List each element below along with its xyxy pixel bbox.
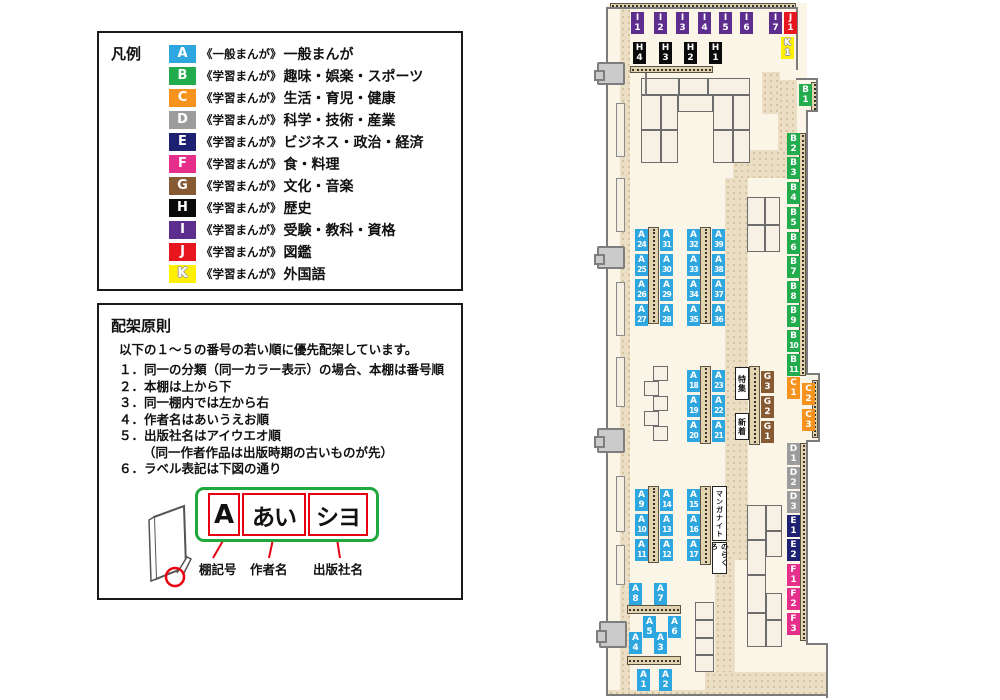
wall <box>806 440 808 645</box>
shelf-label-a23: A23 <box>712 370 725 392</box>
shelf-label-a1: A1 <box>637 669 650 691</box>
bookshelf-strip <box>749 366 760 445</box>
shelf-label-a12: A12 <box>660 539 673 561</box>
shelf-label-i3: I3 <box>676 12 689 34</box>
shelf-label-b9: B9 <box>787 305 800 327</box>
shelf-label-i1: I1 <box>631 12 644 34</box>
bookshelf-strip <box>700 366 711 444</box>
reading-table <box>695 655 714 672</box>
shelf-label-i7: I7 <box>769 12 782 34</box>
reading-table <box>747 613 766 647</box>
reading-table <box>653 396 668 411</box>
shelf-label-e1: E1 <box>787 515 800 537</box>
wall <box>806 440 820 442</box>
reading-table <box>766 531 782 557</box>
wall <box>818 373 820 442</box>
reading-table <box>644 411 659 426</box>
library-manga-floor-map-page: 凡例 A《一般まんが》一般まんがB《学習まんが》趣味・娯楽・スポーツC《学習まん… <box>0 0 1000 700</box>
shelf-label-a24: A24 <box>635 229 648 251</box>
reading-table <box>653 426 668 441</box>
shelf-label-a38: A38 <box>712 254 725 276</box>
shelf-label-b10: B10 <box>787 330 800 352</box>
shelf-label-a3: A3 <box>654 632 667 654</box>
shelf-label-g2: G2 <box>761 396 774 418</box>
shelf-label-j1: J1 <box>784 12 797 34</box>
shelf-label-c2: C2 <box>802 383 815 405</box>
shelf-label-b5: B5 <box>787 207 800 229</box>
shelf-label-b11: B11 <box>787 354 800 376</box>
shelf-label-a18: A18 <box>687 370 700 392</box>
wall-shelf <box>616 476 625 532</box>
text-box-new-arrivals: 新着 <box>735 413 749 440</box>
shelf-label-b8: B8 <box>787 281 800 303</box>
text-box-manga-night: マンガナイト <box>712 486 727 541</box>
shelf-label-k1: K1 <box>781 37 794 59</box>
wall-shelf <box>616 357 625 407</box>
shelf-label-d1: D1 <box>787 443 800 465</box>
reading-table <box>747 197 765 225</box>
door <box>597 428 625 453</box>
shelf-label-b2: B2 <box>787 133 800 155</box>
reading-table <box>766 505 782 531</box>
shelf-label-a4: A4 <box>629 632 642 654</box>
reading-table <box>765 197 780 225</box>
reading-table <box>661 95 678 130</box>
door <box>599 621 627 648</box>
shelf-label-i6: I6 <box>740 12 753 34</box>
reading-table <box>661 130 678 163</box>
reading-table <box>641 130 661 163</box>
reading-table <box>708 78 750 95</box>
shelf-label-a33: A33 <box>687 254 700 276</box>
wall-shelf <box>616 282 625 336</box>
shelf-label-a10: A10 <box>635 514 648 536</box>
bookshelf-strip <box>799 133 806 376</box>
shelf-label-d2: D2 <box>787 467 800 489</box>
shelf-label-a16: A16 <box>687 514 700 536</box>
shelf-label-a7: A7 <box>654 583 667 605</box>
wall <box>796 78 818 80</box>
wall <box>826 643 828 698</box>
shelf-label-f2: F2 <box>787 588 800 610</box>
wall <box>606 694 828 696</box>
shelf-label-d3: D3 <box>787 491 800 513</box>
wall <box>806 643 828 645</box>
wall <box>606 7 608 696</box>
shelf-label-a34: A34 <box>687 279 700 301</box>
text-box-norakuro: のらくろ <box>712 542 727 574</box>
bookshelf-strip <box>700 227 711 324</box>
shelf-label-a32: A32 <box>687 229 700 251</box>
reading-table <box>733 95 750 130</box>
reading-table <box>765 225 780 252</box>
shelf-label-a31: A31 <box>660 229 673 251</box>
shelf-label-a11: A11 <box>635 539 648 561</box>
shelf-label-h4: H4 <box>633 42 646 64</box>
shelf-label-a8: A8 <box>629 583 642 605</box>
shelf-label-i2: I2 <box>654 12 667 34</box>
reading-table <box>695 602 714 620</box>
shelf-label-a6: A6 <box>668 616 681 638</box>
shelf-label-a13: A13 <box>660 514 673 536</box>
reading-table <box>747 575 766 613</box>
reading-table <box>713 95 733 130</box>
shelf-label-a19: A19 <box>687 395 700 417</box>
shelf-label-a28: A28 <box>660 304 673 326</box>
shelf-label-f1: F1 <box>787 564 800 586</box>
shelf-label-i4: I4 <box>698 12 711 34</box>
bookshelf-strip <box>648 486 659 563</box>
reading-table <box>713 130 733 163</box>
shelf-label-a22: A22 <box>712 395 725 417</box>
wall <box>606 7 798 9</box>
bookshelf-strip <box>627 656 681 665</box>
wall-shelf <box>616 103 625 157</box>
shelf-label-c3: C3 <box>802 409 815 431</box>
reading-table <box>747 505 766 540</box>
shelf-label-a20: A20 <box>687 420 700 442</box>
shelf-label-e2: E2 <box>787 539 800 561</box>
reading-table <box>747 540 766 575</box>
shelf-label-a15: A15 <box>687 489 700 511</box>
shelf-label-b7: B7 <box>787 256 800 278</box>
shelf-label-a21: A21 <box>712 420 725 442</box>
door <box>597 62 625 85</box>
wall <box>806 110 808 375</box>
shelf-label-a26: A26 <box>635 279 648 301</box>
shelf-label-a9: A9 <box>635 489 648 511</box>
corridor-path <box>705 672 827 695</box>
wall-shelf <box>616 178 625 232</box>
shelf-label-a27: A27 <box>635 304 648 326</box>
reading-table <box>747 225 765 252</box>
bookshelf-strip <box>648 227 659 324</box>
shelf-label-c1: C1 <box>787 377 800 399</box>
reading-table <box>644 381 659 396</box>
shelf-label-h2: H2 <box>684 42 697 64</box>
reading-table <box>733 130 750 163</box>
reading-table <box>695 620 714 638</box>
shelf-label-b6: B6 <box>787 232 800 254</box>
reading-table <box>679 78 708 95</box>
shelf-label-b1: B1 <box>799 84 812 106</box>
shelf-label-a29: A29 <box>660 279 673 301</box>
bookshelf-strip <box>627 605 681 614</box>
bookshelf-strip <box>630 66 713 73</box>
shelf-label-a14: A14 <box>660 489 673 511</box>
shelf-label-a37: A37 <box>712 279 725 301</box>
shelf-label-a17: A17 <box>687 539 700 561</box>
shelf-label-i5: I5 <box>719 12 732 34</box>
floor-map: I1I2I3I4I5I6I7J1K1H4H3H2H1B1B2B3B4B5B6B7… <box>0 0 1000 700</box>
wall <box>645 73 647 95</box>
reading-table <box>641 95 661 130</box>
shelf-label-a25: A25 <box>635 254 648 276</box>
door <box>597 246 625 269</box>
shelf-label-h1: H1 <box>709 42 722 64</box>
shelf-label-b4: B4 <box>787 182 800 204</box>
shelf-label-h3: H3 <box>659 42 672 64</box>
shelf-label-a39: A39 <box>712 229 725 251</box>
wall-shelf <box>616 545 625 585</box>
reading-table <box>766 620 782 647</box>
shelf-label-a2: A2 <box>659 669 672 691</box>
shelf-label-a30: A30 <box>660 254 673 276</box>
reading-table <box>678 95 713 112</box>
shelf-label-a35: A35 <box>687 304 700 326</box>
shelf-label-f3: F3 <box>787 613 800 635</box>
reading-table <box>653 366 668 381</box>
shelf-label-a36: A36 <box>712 304 725 326</box>
reading-table <box>766 593 782 620</box>
reading-table <box>695 638 714 655</box>
wall <box>816 78 818 112</box>
shelf-label-b3: B3 <box>787 157 800 179</box>
shelf-label-g3: G3 <box>761 371 774 393</box>
shelf-label-g1: G1 <box>761 421 774 443</box>
text-box-special-feature: 特集 <box>735 367 749 400</box>
